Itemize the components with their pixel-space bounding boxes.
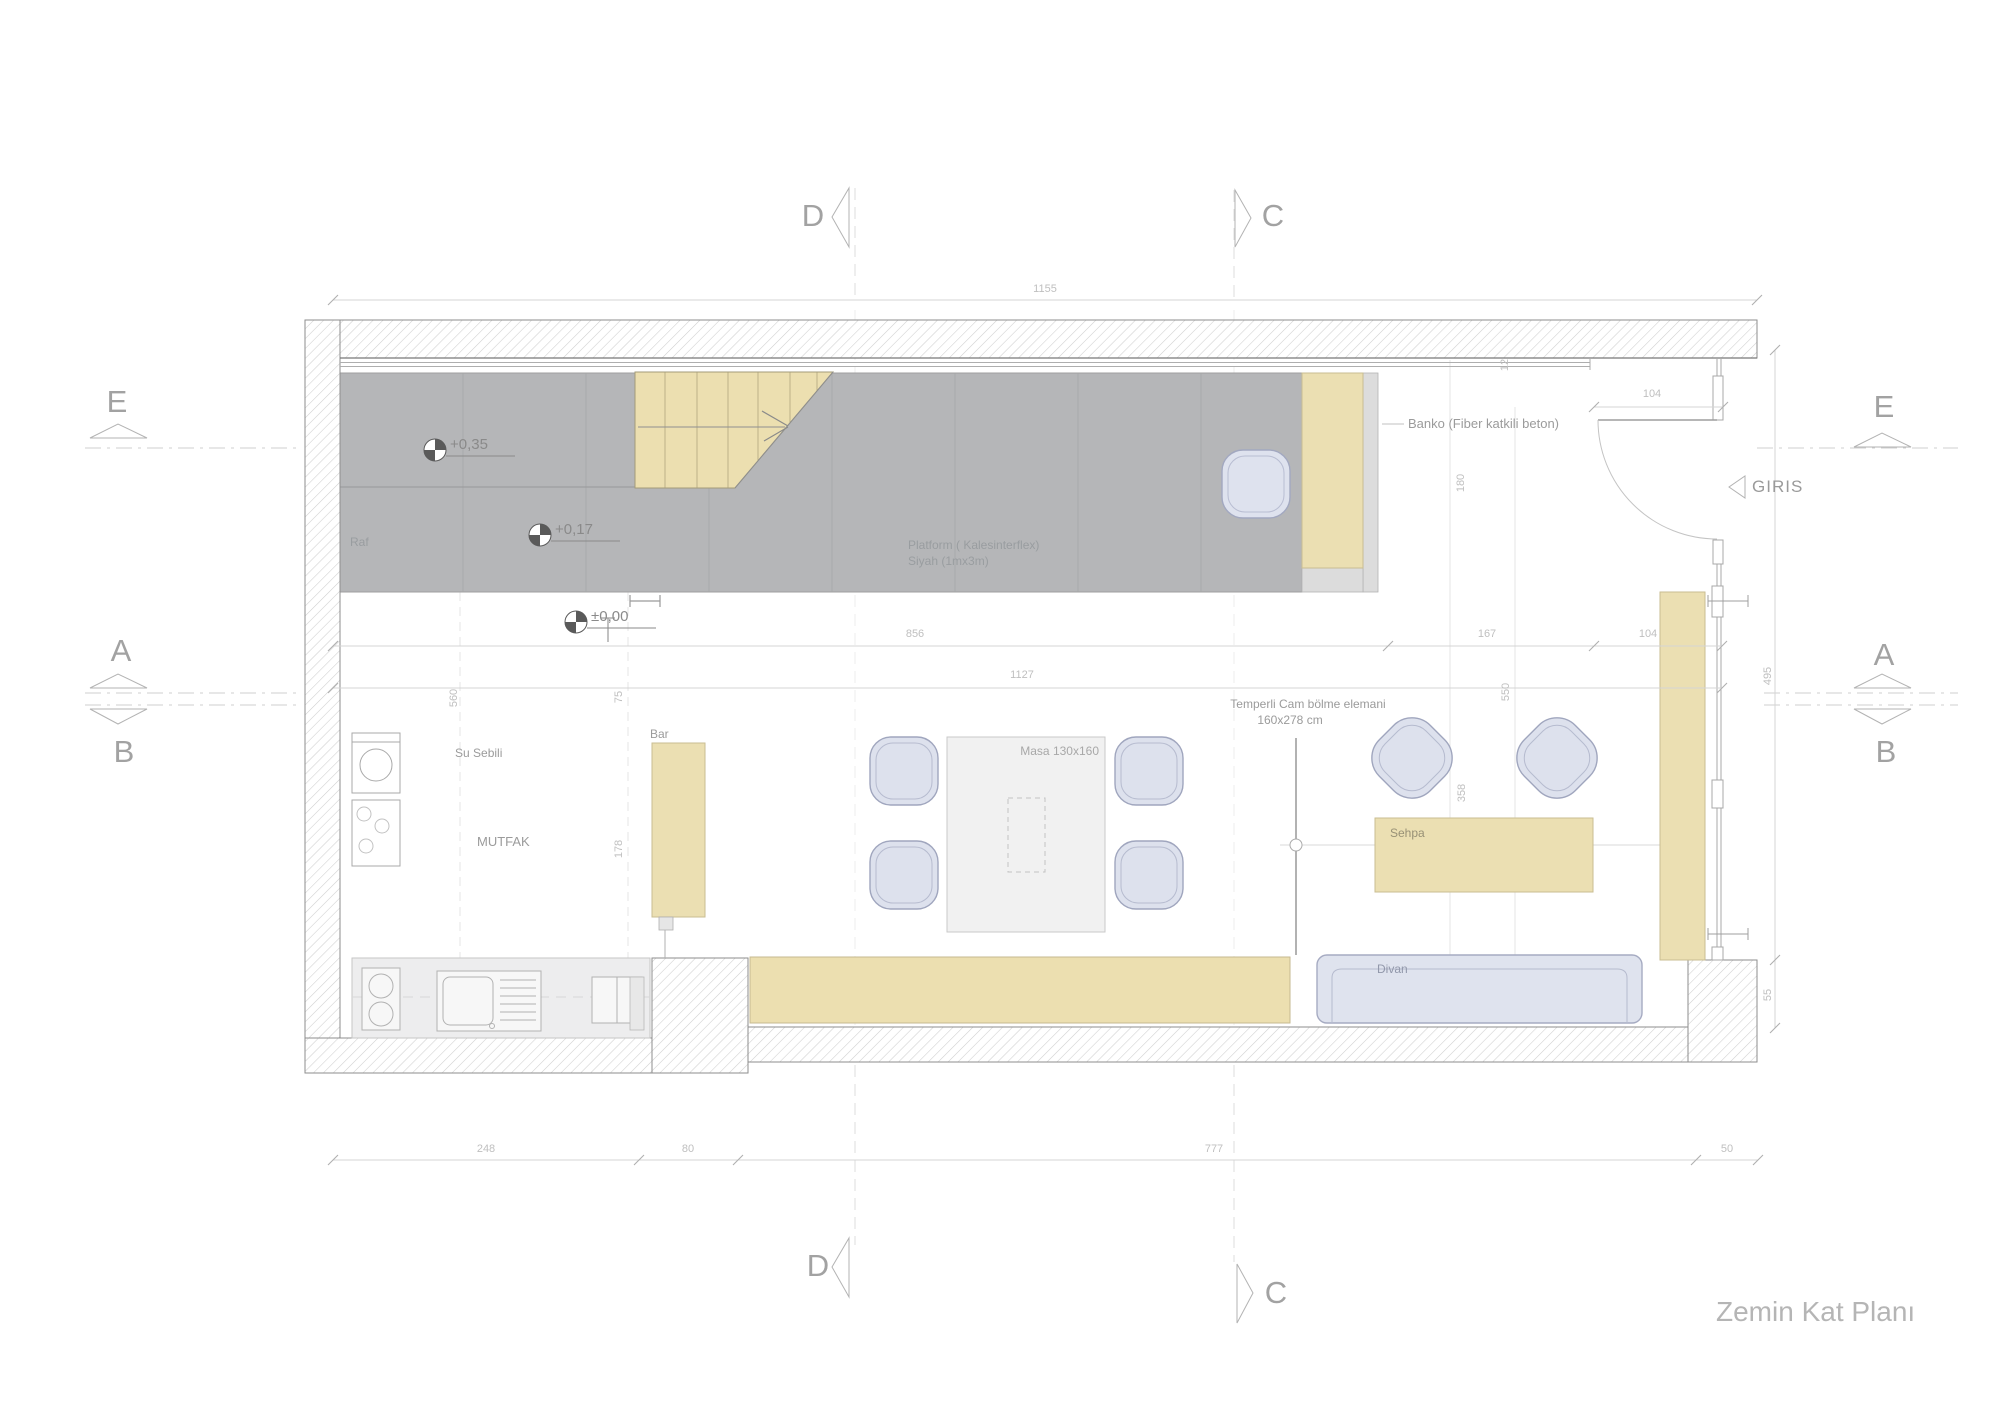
banko-chair <box>1222 450 1290 518</box>
masa-label: Masa 130x160 <box>1020 744 1099 758</box>
dim-mid-856: 856 <box>906 628 924 640</box>
dim-kitchen-75: 75 <box>613 691 625 703</box>
divan-label: Divan <box>1377 962 1408 976</box>
dim-mid-104: 104 <box>1639 628 1657 640</box>
elevation-level1: +0,35 <box>450 436 488 453</box>
side-cabinet <box>1660 592 1705 960</box>
banko-label: Banko (Fiber katkili beton) <box>1408 416 1559 431</box>
dim-bottom-4: 50 <box>1721 1143 1733 1155</box>
section-c-bottom-triangle <box>1237 1264 1253 1323</box>
section-marker-e-right: E <box>1874 389 1895 425</box>
dim-lounge-358: 358 <box>1456 784 1468 802</box>
dim-lounge-550: 550 <box>1500 683 1512 701</box>
bottom-wall-left <box>305 1038 670 1073</box>
bench-seat <box>750 957 1290 1023</box>
section-e-right-triangle <box>1854 433 1911 447</box>
dim-bottom-1: 248 <box>477 1143 495 1155</box>
cam-label-line2: 160x278 cm <box>1257 713 1322 727</box>
bar-label: Bar <box>650 727 669 741</box>
platform-label-line2: Siyah (1mx3m) <box>908 554 989 568</box>
entry-door <box>1598 420 1717 539</box>
entrance-label: GIRIS <box>1752 477 1803 497</box>
top-wall <box>305 320 1757 358</box>
bar-counter <box>652 743 705 958</box>
dining-chair <box>870 841 938 909</box>
left-wall <box>305 320 340 1073</box>
divan-sofa <box>1317 955 1642 1023</box>
dim-mid-167: 167 <box>1478 628 1496 640</box>
section-marker-a-left: A <box>111 633 132 669</box>
glass-facade <box>1712 358 1723 960</box>
bottom-wall-right <box>748 1027 1757 1062</box>
cooktop <box>362 968 400 1030</box>
dim-door-104: 104 <box>1643 388 1661 400</box>
section-marker-b-left: B <box>114 734 135 770</box>
lounge-chair <box>1506 707 1608 809</box>
giris-arrow-triangle <box>1729 476 1745 498</box>
section-c-top-triangle <box>1235 190 1251 247</box>
elevation-level2: +0,17 <box>555 521 593 538</box>
water-dispenser <box>352 733 400 793</box>
sehpa-label: Sehpa <box>1390 826 1425 840</box>
dim-right-495: 495 <box>1762 667 1774 685</box>
section-d-bottom-triangle <box>832 1238 849 1297</box>
dining-table <box>947 737 1105 932</box>
section-marker-d-bottom: D <box>807 1248 829 1284</box>
section-marker-b-right: B <box>1876 734 1897 770</box>
corner-wall-right <box>1688 960 1757 1062</box>
section-marker-e-left: E <box>107 384 128 420</box>
cam-label-line1: Temperli Cam bölme elemani <box>1230 697 1385 711</box>
sink <box>437 971 541 1031</box>
elevation-level0: ±0,00 <box>591 608 628 625</box>
dining-chair <box>1115 737 1183 805</box>
raf-label: Raf <box>350 535 369 549</box>
dim-bottom-2: 80 <box>682 1143 694 1155</box>
kitchen-counter <box>352 958 650 1038</box>
platform-label-line1: Platform ( Kalesinterflex) <box>908 538 1039 552</box>
section-b-right-triangle <box>1854 709 1911 724</box>
dining-chair <box>1115 841 1183 909</box>
dim-bottom-3: 777 <box>1205 1143 1223 1155</box>
dim-entry-180: 180 <box>1455 474 1467 492</box>
dining-chair <box>870 737 938 805</box>
platform <box>340 373 1302 592</box>
wall-trim <box>340 359 1590 370</box>
dim-kitchen-178: 178 <box>613 840 625 858</box>
lounge-chair <box>1361 707 1463 809</box>
section-a-left-triangle <box>90 674 147 688</box>
page-title: Zemin Kat Planı <box>1716 1296 1915 1328</box>
floor-plan-canvas: D C D C E A B E A B GIRIS Banko (Fiber k… <box>0 0 2000 1415</box>
dim-right-55: 55 <box>1762 989 1774 1001</box>
plan-drawing <box>0 0 2000 1415</box>
mutfak-label: MUTFAK <box>477 834 530 849</box>
dim-mid-1127: 1127 <box>1010 669 1034 681</box>
dim-kitchen-560: 560 <box>448 689 460 707</box>
section-marker-a-right: A <box>1874 637 1895 673</box>
section-b-left-triangle <box>90 709 147 724</box>
section-d-top-triangle <box>832 188 849 247</box>
banko-counter <box>1302 373 1378 592</box>
section-e-left-triangle <box>90 424 147 438</box>
section-marker-d-top: D <box>802 198 824 234</box>
cabinet-fixing-marks <box>1708 595 1748 940</box>
counter-return <box>630 977 644 1030</box>
kitchen-shelf-unit <box>352 800 400 866</box>
su-sebili-label: Su Sebili <box>455 746 502 760</box>
section-marker-c-bottom: C <box>1265 1275 1287 1311</box>
section-a-right-triangle <box>1854 674 1911 688</box>
dim-wall-12: 12 <box>1499 359 1511 371</box>
wall-pier <box>652 958 748 1073</box>
dim-total-width: 1155 <box>1033 283 1057 295</box>
section-marker-c-top: C <box>1262 198 1284 234</box>
